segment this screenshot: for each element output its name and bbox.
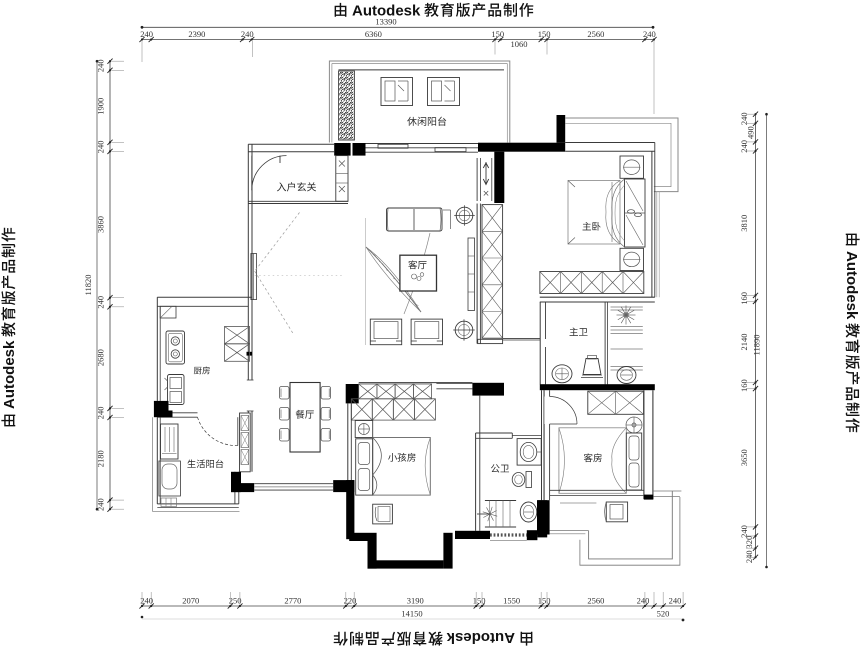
svg-text:3190: 3190 (407, 595, 424, 605)
svg-text:240: 240 (744, 550, 754, 563)
svg-text:150: 150 (491, 29, 504, 39)
svg-text:Autodesk: Autodesk (843, 251, 860, 320)
svg-text:Autodesk: Autodesk (1, 340, 18, 409)
svg-text:2070: 2070 (182, 595, 199, 605)
svg-text:160: 160 (739, 379, 749, 392)
svg-text:150: 150 (473, 595, 486, 605)
svg-text:490: 490 (746, 126, 756, 139)
svg-text:6360: 6360 (365, 29, 382, 39)
svg-text:1550: 1550 (503, 595, 520, 605)
svg-text:240: 240 (241, 29, 254, 39)
svg-text:240: 240 (669, 595, 682, 605)
svg-text:1060: 1060 (511, 39, 528, 49)
svg-text:Autodesk: Autodesk (446, 629, 515, 646)
svg-text:150: 150 (538, 595, 551, 605)
svg-text:240: 240 (140, 29, 153, 39)
svg-text:320: 320 (744, 536, 754, 549)
svg-text:520: 520 (657, 609, 670, 619)
svg-text:2560: 2560 (587, 29, 604, 39)
svg-text:150: 150 (538, 29, 551, 39)
svg-text:160: 160 (739, 292, 749, 305)
svg-text:240: 240 (637, 595, 650, 605)
svg-text:13390: 13390 (375, 17, 396, 27)
svg-text:2140: 2140 (739, 334, 749, 351)
svg-text:2770: 2770 (284, 595, 301, 605)
svg-text:250: 250 (229, 595, 242, 605)
svg-text:3650: 3650 (739, 449, 749, 466)
svg-text:3810: 3810 (739, 215, 749, 232)
svg-text:2560: 2560 (587, 595, 604, 605)
svg-text:14150: 14150 (401, 609, 422, 619)
svg-text:240: 240 (643, 29, 656, 39)
svg-text:2390: 2390 (188, 29, 205, 39)
svg-text:11820: 11820 (83, 275, 93, 296)
svg-text:11890: 11890 (752, 335, 762, 356)
